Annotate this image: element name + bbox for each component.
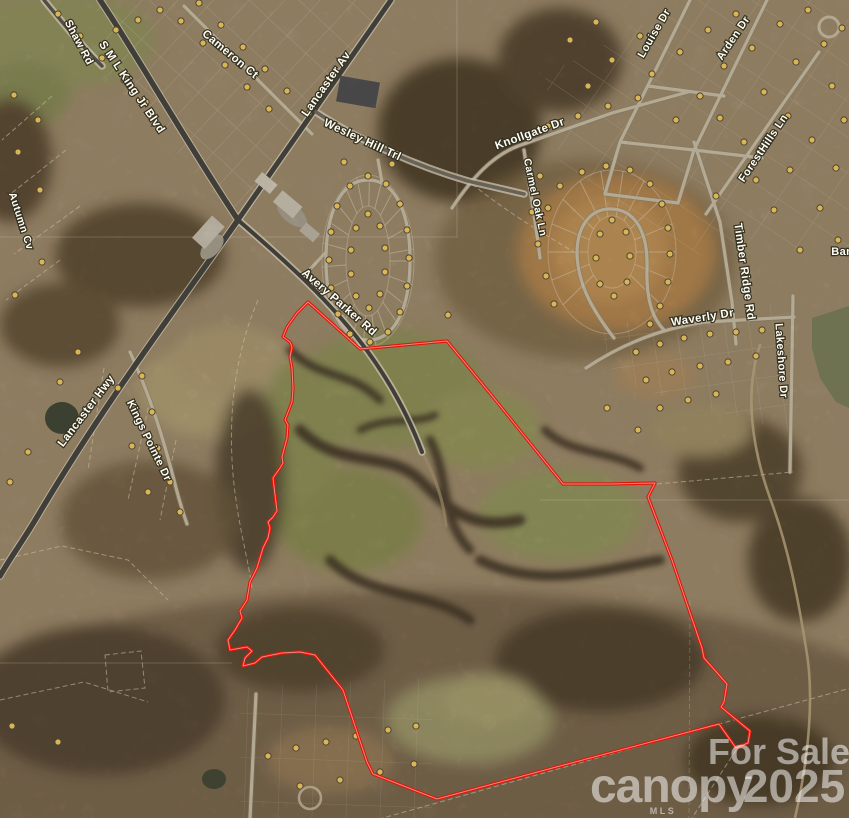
house-marker xyxy=(833,165,839,171)
house-marker xyxy=(348,247,354,253)
house-marker xyxy=(609,57,615,63)
house-marker xyxy=(557,183,563,189)
house-marker xyxy=(627,167,633,173)
house-marker xyxy=(445,312,451,318)
house-marker xyxy=(382,269,388,275)
house-marker xyxy=(284,88,290,94)
house-marker xyxy=(713,391,719,397)
house-marker xyxy=(635,95,641,101)
house-marker xyxy=(39,259,45,265)
house-marker xyxy=(741,139,747,145)
house-marker xyxy=(37,187,43,193)
pond-bottom-left xyxy=(202,769,226,789)
house-marker xyxy=(611,293,617,299)
house-marker xyxy=(177,509,183,515)
house-marker xyxy=(240,44,246,50)
house-marker xyxy=(35,117,41,123)
house-marker xyxy=(657,405,663,411)
watermark-mls: MLS xyxy=(650,806,677,816)
house-marker xyxy=(11,92,17,98)
house-marker xyxy=(839,25,845,31)
house-marker xyxy=(377,223,383,229)
house-marker xyxy=(411,761,417,767)
house-marker xyxy=(348,271,354,277)
house-marker xyxy=(777,21,783,27)
house-marker xyxy=(337,777,343,783)
house-marker xyxy=(649,71,655,77)
house-marker xyxy=(604,405,610,411)
house-marker xyxy=(597,281,603,287)
house-marker xyxy=(328,229,334,235)
house-marker xyxy=(545,205,551,211)
house-marker xyxy=(635,427,641,433)
map-canvas[interactable]: Shaw RdS M L King Jr BlvdCameron CtLanca… xyxy=(0,0,849,818)
house-marker xyxy=(633,349,639,355)
house-marker xyxy=(149,409,155,415)
house-marker xyxy=(266,106,272,112)
house-marker xyxy=(749,45,755,51)
house-marker xyxy=(293,745,299,751)
house-marker xyxy=(178,18,184,24)
house-marker xyxy=(627,253,633,259)
house-marker xyxy=(7,479,13,485)
house-marker xyxy=(9,723,15,729)
house-marker xyxy=(575,113,581,119)
house-marker xyxy=(829,83,835,89)
house-marker xyxy=(75,349,81,355)
house-marker xyxy=(218,22,224,28)
house-marker xyxy=(685,397,691,403)
house-marker xyxy=(667,251,673,257)
house-marker xyxy=(535,241,541,247)
house-marker xyxy=(365,173,371,179)
house-marker xyxy=(397,309,403,315)
house-marker xyxy=(771,207,777,213)
house-marker xyxy=(821,41,827,47)
house-marker xyxy=(697,363,703,369)
house-marker xyxy=(404,227,410,233)
house-marker xyxy=(597,231,603,237)
house-marker xyxy=(297,783,303,789)
house-marker xyxy=(753,177,759,183)
house-marker xyxy=(657,303,663,309)
house-marker xyxy=(365,211,371,217)
house-marker xyxy=(15,149,21,155)
house-marker xyxy=(139,373,145,379)
house-marker xyxy=(681,335,687,341)
house-marker xyxy=(579,169,585,175)
house-marker xyxy=(761,89,767,95)
house-marker xyxy=(721,63,727,69)
house-marker xyxy=(196,0,202,6)
house-marker xyxy=(841,117,847,123)
house-marker xyxy=(567,37,573,43)
house-marker xyxy=(585,83,591,89)
house-marker xyxy=(624,279,630,285)
house-marker xyxy=(157,7,163,13)
house-marker xyxy=(643,377,649,383)
house-marker xyxy=(817,205,823,211)
house-marker xyxy=(262,66,268,72)
house-marker xyxy=(135,17,141,23)
house-marker xyxy=(55,739,61,745)
house-marker xyxy=(623,229,629,235)
house-marker xyxy=(551,301,557,307)
house-marker xyxy=(603,163,609,169)
house-marker xyxy=(835,237,841,243)
house-marker xyxy=(389,161,395,167)
house-marker xyxy=(347,183,353,189)
house-marker xyxy=(385,727,391,733)
house-marker xyxy=(25,449,31,455)
house-marker xyxy=(637,33,643,39)
house-marker xyxy=(725,359,731,365)
house-marker xyxy=(647,321,653,327)
house-marker xyxy=(647,181,653,187)
house-marker xyxy=(113,27,119,33)
house-marker xyxy=(222,62,228,68)
house-marker xyxy=(326,257,332,263)
house-marker xyxy=(677,49,683,55)
house-marker xyxy=(341,159,347,165)
watermark-year: 2025 xyxy=(743,760,845,812)
house-marker xyxy=(323,739,329,745)
house-marker xyxy=(593,255,599,261)
house-marker xyxy=(605,103,611,109)
aerial-map-image: Shaw RdS M L King Jr BlvdCameron CtLanca… xyxy=(0,0,849,818)
house-marker xyxy=(334,203,340,209)
house-marker xyxy=(383,181,389,187)
house-marker xyxy=(673,117,679,123)
house-marker xyxy=(733,11,739,17)
house-marker xyxy=(397,201,403,207)
house-marker xyxy=(367,339,373,345)
house-marker xyxy=(793,59,799,65)
house-marker xyxy=(129,443,135,449)
house-marker xyxy=(705,27,711,33)
house-marker xyxy=(697,93,703,99)
house-marker xyxy=(12,292,18,298)
house-marker xyxy=(657,341,663,347)
house-marker xyxy=(413,723,419,729)
house-marker xyxy=(609,217,615,223)
house-marker xyxy=(805,7,811,13)
house-marker xyxy=(353,293,359,299)
house-marker xyxy=(244,84,250,90)
house-marker xyxy=(382,245,388,251)
house-marker xyxy=(809,137,815,143)
house-marker xyxy=(713,193,719,199)
house-marker xyxy=(733,329,739,335)
house-marker xyxy=(404,283,410,289)
house-marker xyxy=(659,201,665,207)
house-marker xyxy=(377,291,383,297)
house-marker xyxy=(366,305,372,311)
road-label-bar-partial: Bar xyxy=(831,246,849,258)
house-marker xyxy=(406,255,412,261)
house-marker xyxy=(385,329,391,335)
house-marker xyxy=(55,11,61,17)
house-marker xyxy=(145,489,151,495)
house-marker xyxy=(593,19,599,25)
house-marker xyxy=(543,273,549,279)
house-marker xyxy=(787,167,793,173)
house-marker xyxy=(797,247,803,253)
house-marker xyxy=(335,311,341,317)
house-marker xyxy=(115,385,121,391)
house-marker xyxy=(717,115,723,121)
house-marker xyxy=(265,753,271,759)
house-marker xyxy=(353,225,359,231)
house-marker xyxy=(759,327,765,333)
house-marker xyxy=(665,279,671,285)
house-marker xyxy=(57,379,63,385)
house-marker xyxy=(753,353,759,359)
house-marker xyxy=(707,331,713,337)
house-marker xyxy=(669,369,675,375)
house-marker xyxy=(665,225,671,231)
